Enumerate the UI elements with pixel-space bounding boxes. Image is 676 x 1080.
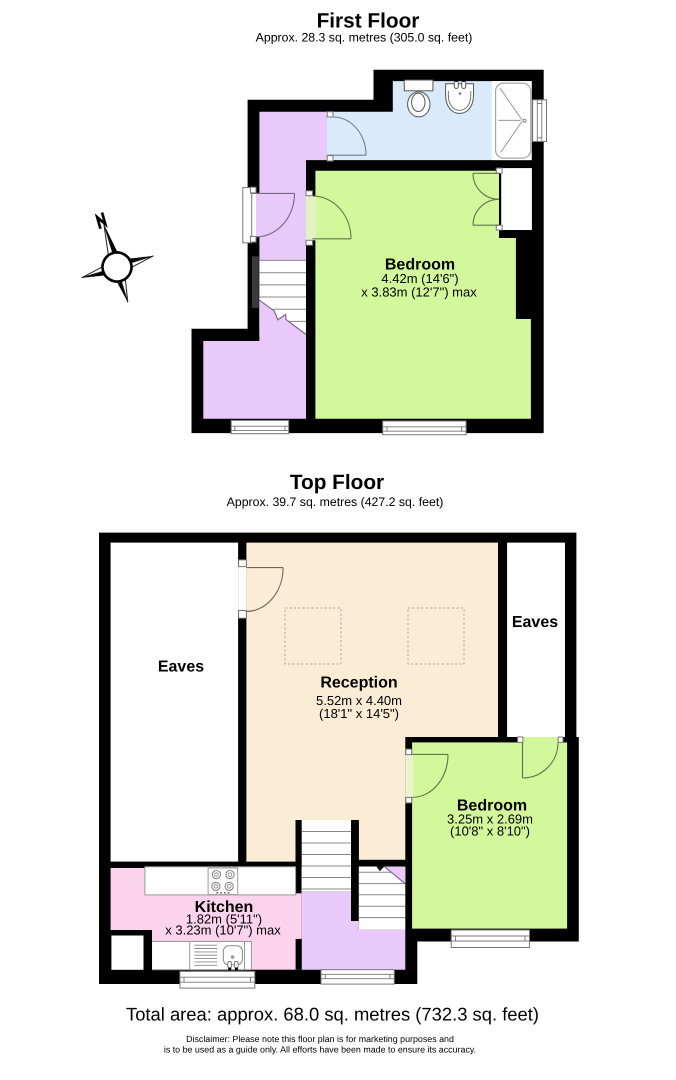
svg-text:Disclaimer: Please note this f: Disclaimer: Please note this floor plan … (186, 1034, 454, 1044)
svg-text:(10'8" x 8'10"): (10'8" x 8'10") (450, 824, 530, 839)
svg-text:x 3.83m (12'7") max: x 3.83m (12'7") max (361, 285, 477, 300)
svg-text:Approx. 28.3 sq. metres (305.0: Approx. 28.3 sq. metres (305.0 sq. feet) (256, 31, 473, 45)
svg-text:Reception: Reception (320, 675, 397, 692)
svg-text:Eaves: Eaves (158, 659, 204, 676)
svg-text:First Floor: First Floor (317, 10, 420, 33)
svg-text:(18'1" x 14'5"): (18'1" x 14'5") (319, 706, 399, 721)
svg-text:x 3.23m (10'7") max: x 3.23m (10'7") max (165, 923, 281, 938)
svg-text:Eaves: Eaves (512, 614, 558, 631)
svg-text:Approx. 39.7 sq. metres (427.2: Approx. 39.7 sq. metres (427.2 sq. feet) (227, 495, 444, 509)
svg-text:Top Floor: Top Floor (290, 471, 384, 494)
svg-text:is to be used as a guide only.: is to be used as a guide only. All effor… (164, 1045, 476, 1055)
svg-text:Total area: approx. 68.0 sq. m: Total area: approx. 68.0 sq. metres (732… (126, 1004, 539, 1025)
